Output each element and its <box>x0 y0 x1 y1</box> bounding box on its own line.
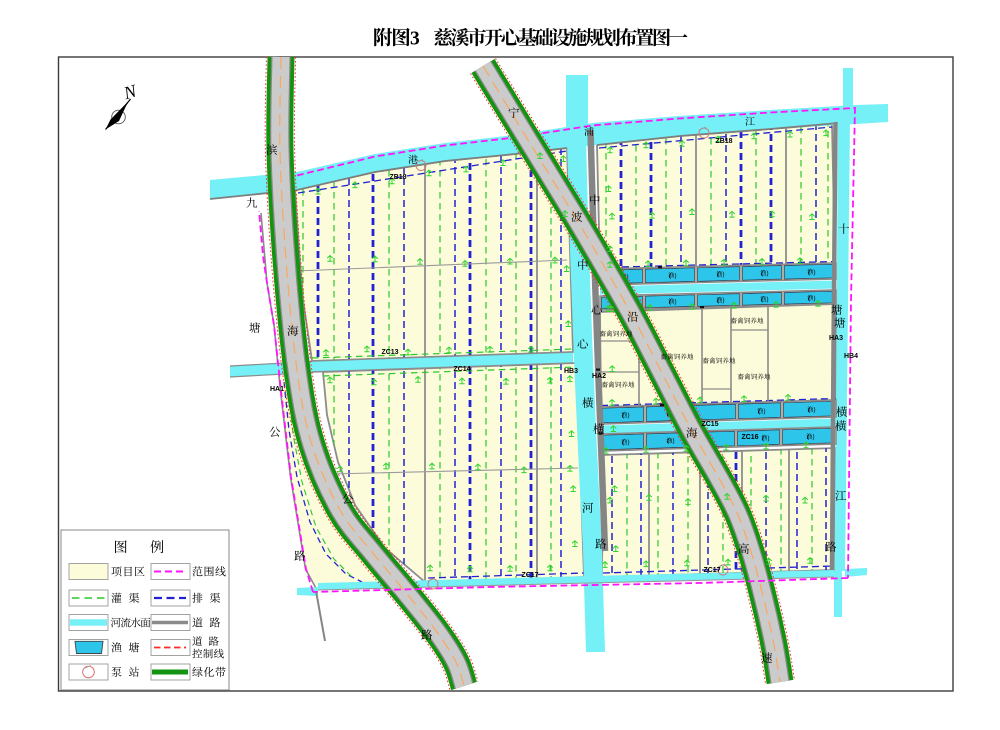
svg-text:ZB18: ZB18 <box>715 138 732 145</box>
svg-text:ZB18: ZB18 <box>389 174 406 181</box>
svg-text:): ) <box>672 438 674 445</box>
svg-text:ZC16: ZC16 <box>741 434 758 441</box>
svg-text:): ) <box>813 407 815 414</box>
svg-text:): ) <box>812 434 814 441</box>
svg-text:HB3: HB3 <box>564 368 578 375</box>
svg-text:ZC14: ZC14 <box>453 366 470 373</box>
svg-text:): ) <box>627 412 629 419</box>
svg-text:): ) <box>813 269 815 276</box>
svg-text:): ) <box>674 298 676 305</box>
svg-text:ZC13: ZC13 <box>381 349 398 356</box>
svg-text:ZC17: ZC17 <box>703 567 720 574</box>
svg-text:): ) <box>763 408 765 415</box>
svg-text:HA2: HA2 <box>592 373 606 380</box>
svg-text:): ) <box>722 297 724 304</box>
svg-text:HA3: HA3 <box>829 335 843 342</box>
svg-text:): ) <box>766 296 768 303</box>
svg-text:): ) <box>767 435 769 442</box>
svg-text:): ) <box>813 295 815 302</box>
svg-text:): ) <box>627 439 629 446</box>
svg-text:HA1: HA1 <box>270 386 284 393</box>
svg-text:): ) <box>766 270 768 277</box>
svg-text:): ) <box>674 272 676 279</box>
svg-text:HB4: HB4 <box>844 353 858 360</box>
svg-text:3: 3 <box>410 28 420 49</box>
svg-text:): ) <box>722 271 724 278</box>
svg-text:ZC15: ZC15 <box>701 421 718 428</box>
svg-text:ZC17: ZC17 <box>521 572 538 579</box>
